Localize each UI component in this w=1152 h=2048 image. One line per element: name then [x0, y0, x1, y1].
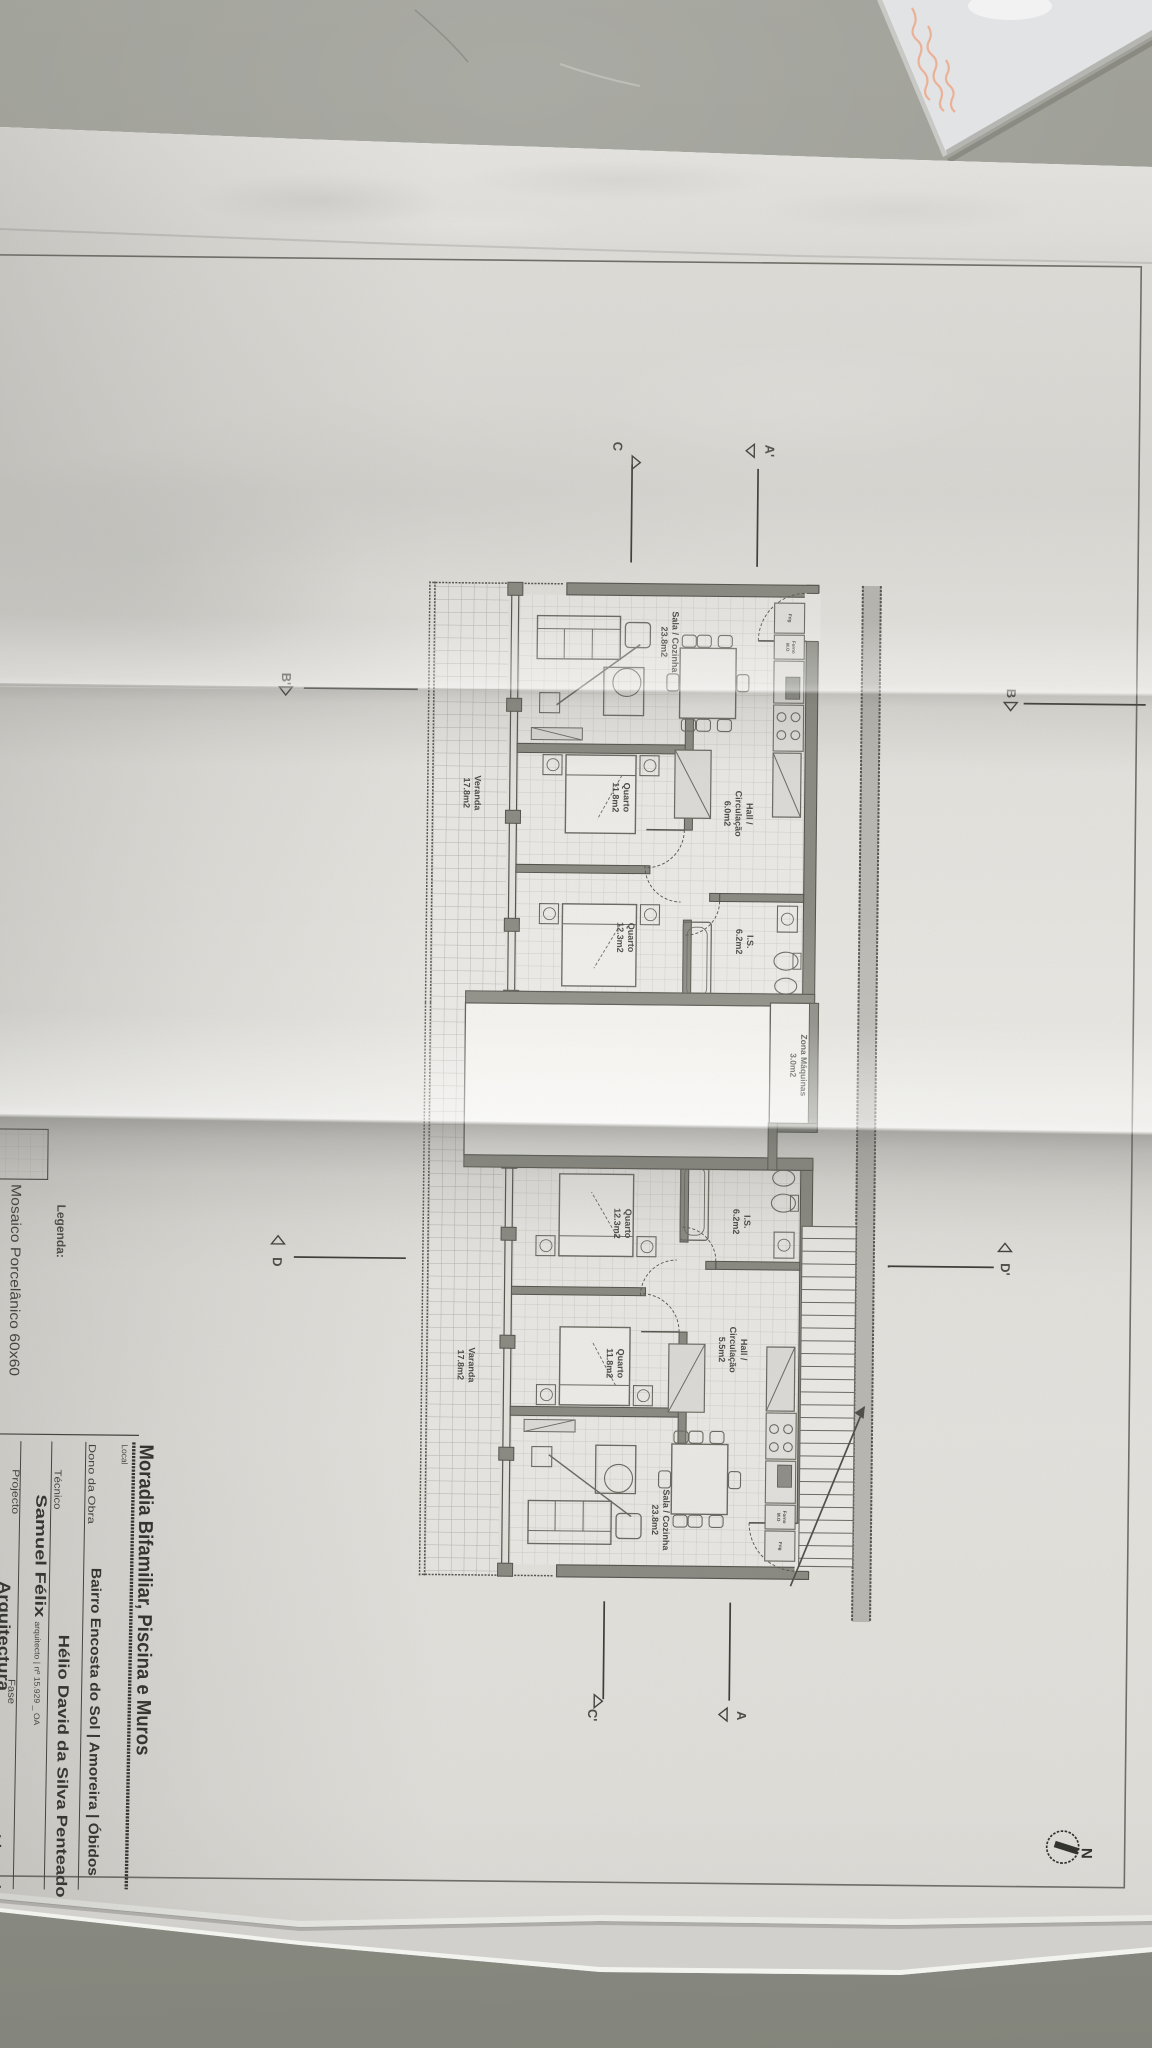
svg-text:A': A' [762, 445, 777, 458]
svg-text:Fase: Fase [5, 1679, 16, 1705]
svg-text:Quarto11.8m2: Quarto11.8m2 [605, 1348, 626, 1378]
svg-text:Forno: Forno [782, 1511, 787, 1524]
svg-text:arquitecto | nº 15.929 _ OA: arquitecto | nº 15.929 _ OA [32, 1621, 42, 1726]
svg-text:Forno: Forno [791, 641, 796, 654]
svg-text:Quarto12.3m2: Quarto12.3m2 [615, 922, 636, 953]
svg-text:Local: Local [120, 1444, 130, 1465]
svg-text:D': D' [998, 1263, 1013, 1276]
svg-text:Quarto12.3m2: Quarto12.3m2 [612, 1208, 633, 1239]
svg-text:Dono da Obra: Dono da Obra [85, 1444, 97, 1525]
svg-text:Arquitectura: Arquitectura [0, 1581, 12, 1691]
svg-text:Projecto: Projecto [9, 1469, 20, 1515]
svg-text:B: B [1004, 689, 1019, 699]
svg-text:Varanda17.8m2: Varanda17.8m2 [456, 1347, 477, 1383]
svg-text:M.O: M.O [785, 643, 790, 652]
svg-text:Veranda17.8m2: Veranda17.8m2 [462, 775, 483, 811]
svg-text:Samuel Félix: Samuel Félix [31, 1494, 49, 1618]
svg-text:Bairro Encosta do Sol | Amorei: Bairro Encosta do Sol | Amoreira | Óbido… [85, 1568, 105, 1876]
svg-text:Mosaico Porcelânico 60x60: Mosaico Porcelânico 60x60 [7, 1184, 25, 1376]
svg-text:N: N [1078, 1848, 1095, 1859]
svg-text:M.O: M.O [776, 1513, 781, 1522]
svg-text:Técnico: Técnico [51, 1469, 62, 1510]
svg-text:C': C' [585, 1709, 600, 1722]
svg-text:Frig: Frig [788, 614, 793, 623]
svg-text:Licenciamento: Licenciamento [0, 1834, 3, 1946]
svg-text:Quarto11.8m2: Quarto11.8m2 [611, 782, 632, 812]
svg-text:B': B' [279, 673, 294, 686]
svg-text:Frig: Frig [778, 1542, 783, 1551]
svg-text:A: A [734, 1711, 749, 1721]
svg-text:Legenda:: Legenda: [54, 1204, 69, 1257]
svg-text:D: D [270, 1257, 285, 1267]
svg-text:Moradia Bifamiliar, Piscina e: Moradia Bifamiliar, Piscina e Muros [132, 1444, 157, 1755]
svg-text:Hélio David da Silva Penteado: Hélio David da Silva Penteado [52, 1635, 72, 1898]
svg-text:C: C [610, 442, 625, 452]
